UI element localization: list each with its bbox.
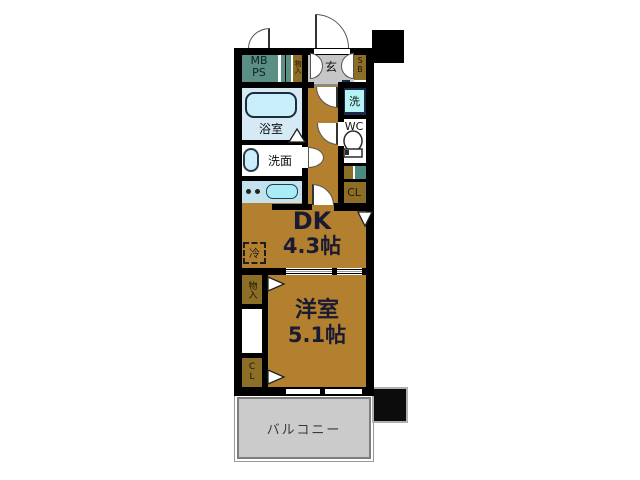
storage-left: 物入: [240, 275, 264, 305]
wall: [334, 203, 372, 211]
dk-name: DK: [262, 208, 362, 235]
void-box: [240, 308, 264, 353]
sliding-door: [286, 269, 362, 274]
wall: [340, 115, 372, 119]
structure-block-bottom-right: [372, 387, 408, 423]
kitchen-counter: [240, 181, 302, 203]
storage-left-label: 物入: [246, 281, 259, 299]
meter-box-door-arc: [248, 28, 270, 48]
wall: [338, 146, 344, 210]
wall: [238, 176, 304, 181]
entrance-step-line: [314, 84, 338, 86]
washer-label: 洗: [349, 93, 360, 109]
dk-label: DK 4.3帖: [262, 208, 362, 258]
wall: [234, 48, 242, 396]
balcony: バルコニー: [234, 394, 374, 462]
meter-box-pipe-space: MB PS: [240, 52, 278, 82]
stove-burner-icon: [246, 189, 251, 194]
kitchen-sink: [266, 184, 298, 199]
wall: [262, 275, 268, 387]
balcony-label: バルコニー: [239, 399, 369, 457]
washer-area: 洗: [342, 87, 367, 115]
wall: [236, 304, 264, 309]
mb-ps-label: MB PS: [250, 55, 267, 79]
washstand-room: 洗面: [240, 145, 302, 176]
small-cabinet-right: [355, 166, 366, 179]
structure-block-top-right: [372, 30, 404, 63]
wall: [236, 353, 264, 358]
wc-label-wrap: WC: [342, 120, 366, 133]
wc-label: WC: [345, 120, 364, 133]
wall: [234, 268, 286, 275]
pipe-shaft-divider: [285, 52, 286, 82]
wall: [366, 48, 374, 396]
bath-label: 浴室: [259, 120, 283, 137]
closet-dk-label: CL: [347, 186, 361, 199]
wc-room: WC: [342, 119, 366, 163]
stove-burner-icon: [255, 189, 260, 194]
washstand-sink: [243, 148, 259, 172]
wall: [302, 88, 308, 147]
western-room-name: 洋室: [270, 299, 364, 324]
washstand-label-wrap: 洗面: [260, 151, 300, 169]
entrance-label: 玄: [325, 58, 337, 75]
sliding-door-track: [286, 271, 362, 272]
dk-size: 4.3帖: [262, 235, 362, 259]
floor-plan: バルコニー MB PS 物入 玄 SB 浴室 洗面: [0, 0, 640, 480]
sliding-door-stop: [332, 268, 337, 275]
closet-left: CL: [240, 357, 264, 387]
wall: [238, 140, 304, 145]
fridge-label: 冷: [249, 245, 260, 261]
closet-left-label: CL: [247, 362, 257, 382]
bathroom: 浴室: [240, 88, 302, 140]
washstand-label: 洗面: [268, 152, 292, 169]
wall: [340, 83, 372, 87]
balcony-window-stop: [320, 387, 325, 396]
entrance-doorway: [314, 48, 350, 55]
fridge-space: 冷: [243, 242, 266, 264]
western-room-size: 5.1帖: [270, 324, 364, 348]
balcony-inner: バルコニー: [237, 397, 371, 459]
wall: [272, 204, 312, 210]
wall: [302, 48, 308, 82]
entrance-door-arc: [315, 14, 349, 48]
closet-dk: CL: [342, 182, 366, 203]
bath-label-wrap: 浴室: [248, 120, 294, 136]
wall: [340, 179, 372, 182]
pipe-shaft: [281, 52, 291, 82]
washer-label-wrap: 洗: [345, 90, 364, 112]
shoe-box-label: SB: [356, 56, 365, 74]
wall: [362, 268, 372, 275]
western-room-label: 洋室 5.1帖: [270, 299, 364, 347]
wall: [340, 163, 372, 166]
bathtub: [245, 92, 297, 118]
